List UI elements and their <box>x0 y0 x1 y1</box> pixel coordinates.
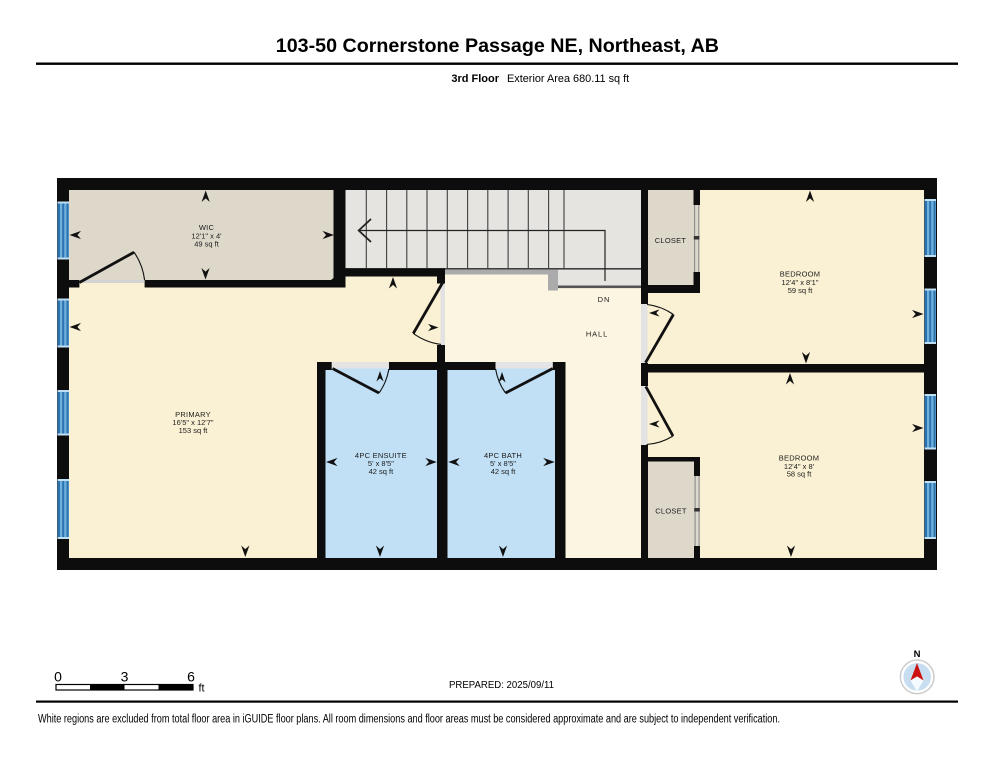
svg-text:CLOSET: CLOSET <box>655 236 687 245</box>
svg-text:59 sq ft: 59 sq ft <box>788 286 814 295</box>
svg-text:N: N <box>914 649 921 660</box>
svg-text:PREPARED: 2025/09/11: PREPARED: 2025/09/11 <box>449 680 554 691</box>
svg-text:58 sq ft: 58 sq ft <box>787 470 813 479</box>
svg-text:103-50 Cornerstone Passage NE,: 103-50 Cornerstone Passage NE, Northeast… <box>276 35 719 57</box>
svg-text:ft: ft <box>199 683 205 695</box>
svg-text:DN: DN <box>598 295 611 304</box>
svg-text:153 sq ft: 153 sq ft <box>179 426 209 435</box>
svg-text:6: 6 <box>187 669 195 685</box>
svg-text:Exterior Area 680.11 sq ft: Exterior Area 680.11 sq ft <box>507 73 629 85</box>
svg-text:3rd Floor: 3rd Floor <box>451 73 499 85</box>
svg-text:HALL: HALL <box>586 330 608 339</box>
svg-text:0: 0 <box>54 669 62 685</box>
svg-text:3: 3 <box>121 669 129 685</box>
svg-text:42 sq ft: 42 sq ft <box>369 467 395 476</box>
svg-text:49 sq ft: 49 sq ft <box>194 240 220 249</box>
svg-text:CLOSET: CLOSET <box>655 507 687 516</box>
svg-text:White regions are excluded fro: White regions are excluded from total fl… <box>38 714 780 726</box>
svg-text:42 sq ft: 42 sq ft <box>491 467 517 476</box>
